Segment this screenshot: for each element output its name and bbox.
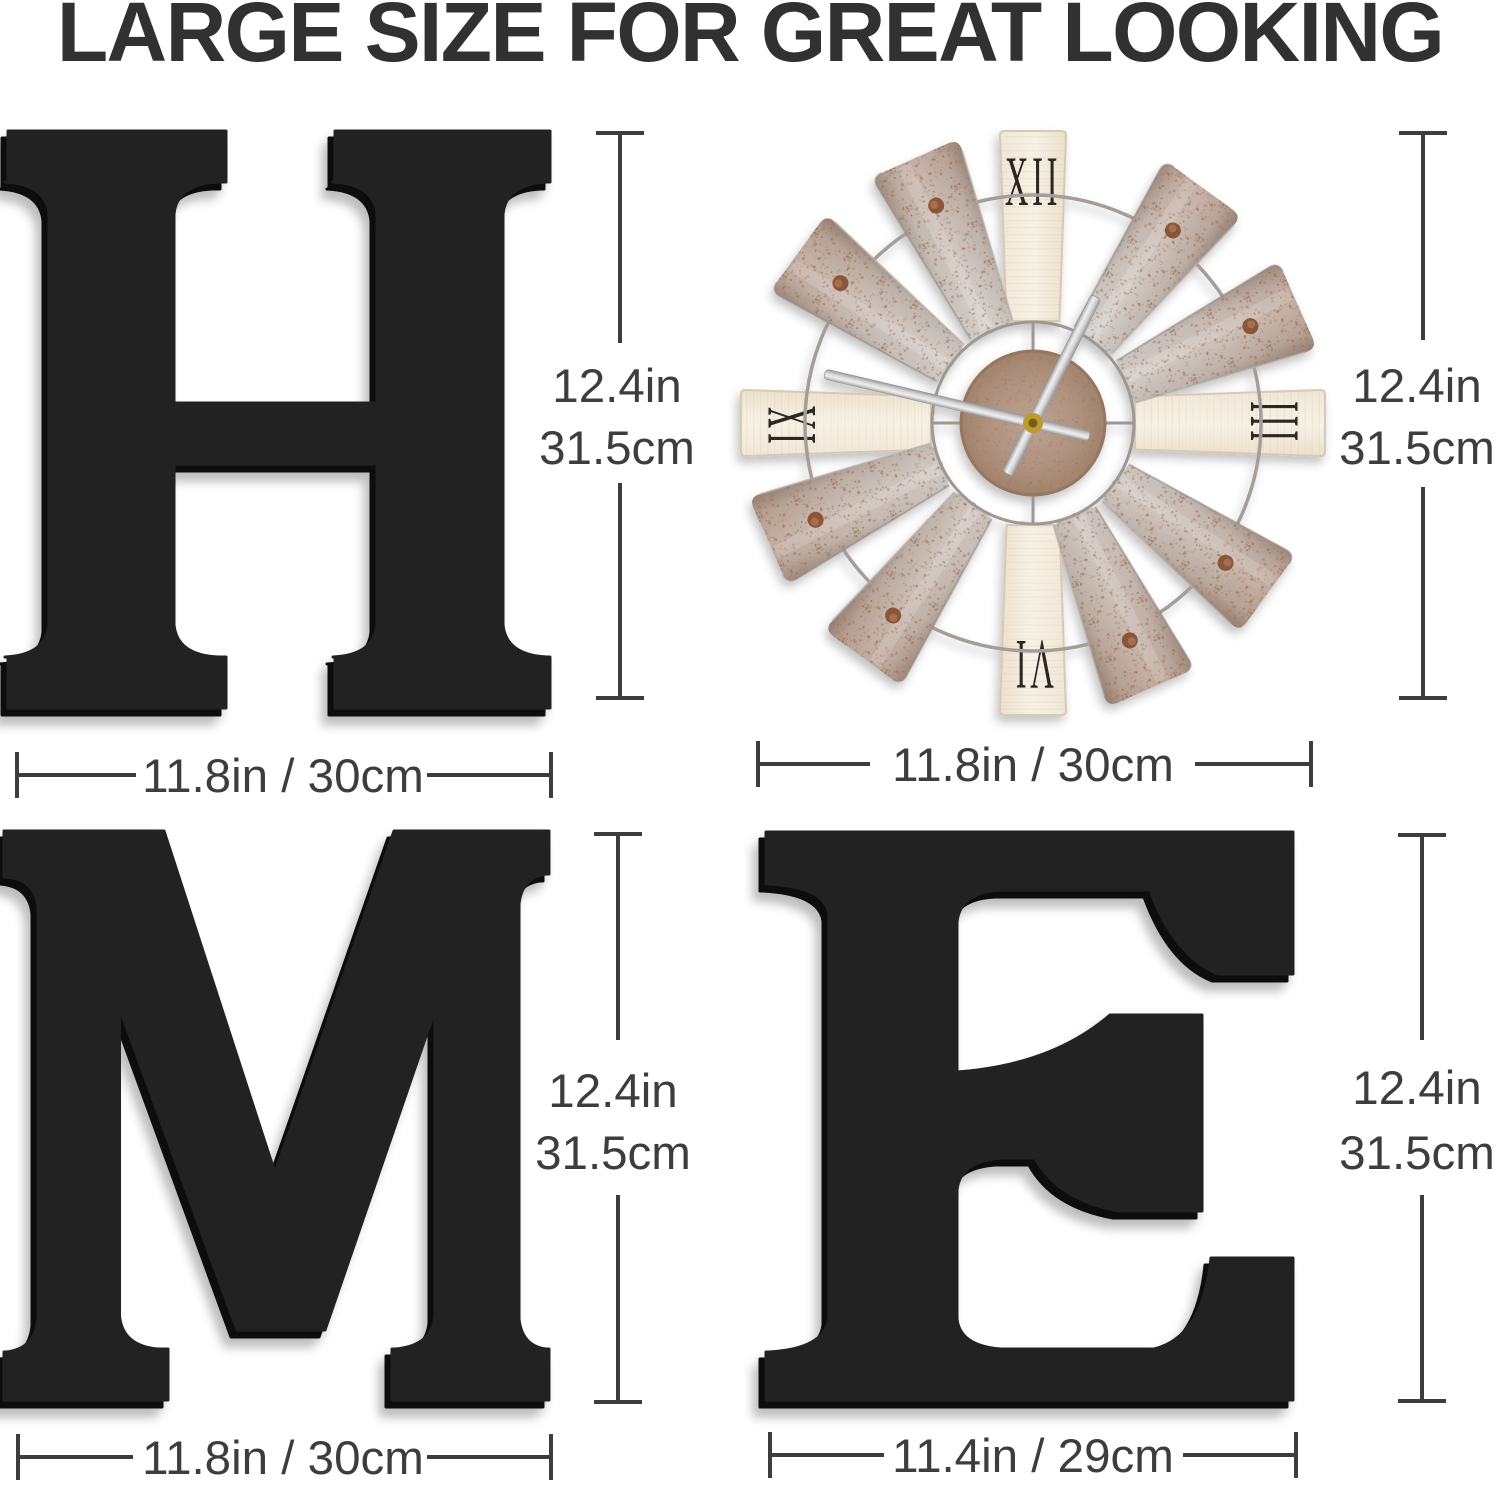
svg-text:12.4in: 12.4in [1352,1062,1481,1115]
svg-text:31.5cm: 31.5cm [1339,422,1495,475]
svg-text:11.8in / 30cm: 11.8in / 30cm [892,739,1174,792]
svg-text:11.8in / 30cm: 11.8in / 30cm [142,750,424,803]
svg-text:31.5cm: 31.5cm [535,1127,691,1180]
svg-text:31.5cm: 31.5cm [539,422,695,475]
svg-text:31.5cm: 31.5cm [1339,1127,1495,1180]
svg-text:11.4in / 29cm: 11.4in / 29cm [892,1430,1174,1483]
svg-text:III: III [1236,401,1314,445]
svg-text:12.4in: 12.4in [548,1065,677,1118]
svg-text:12.4in: 12.4in [1352,360,1481,413]
svg-text:11.8in / 30cm: 11.8in / 30cm [142,1432,424,1485]
svg-text:12.4in: 12.4in [552,360,681,413]
svg-text:IX: IX [752,402,830,444]
svg-text:XII: XII [1005,142,1061,220]
svg-text:LARGE SIZE FOR GREAT LOOKING: LARGE SIZE FOR GREAT LOOKING [57,0,1443,79]
svg-text:VI: VI [1012,626,1054,704]
